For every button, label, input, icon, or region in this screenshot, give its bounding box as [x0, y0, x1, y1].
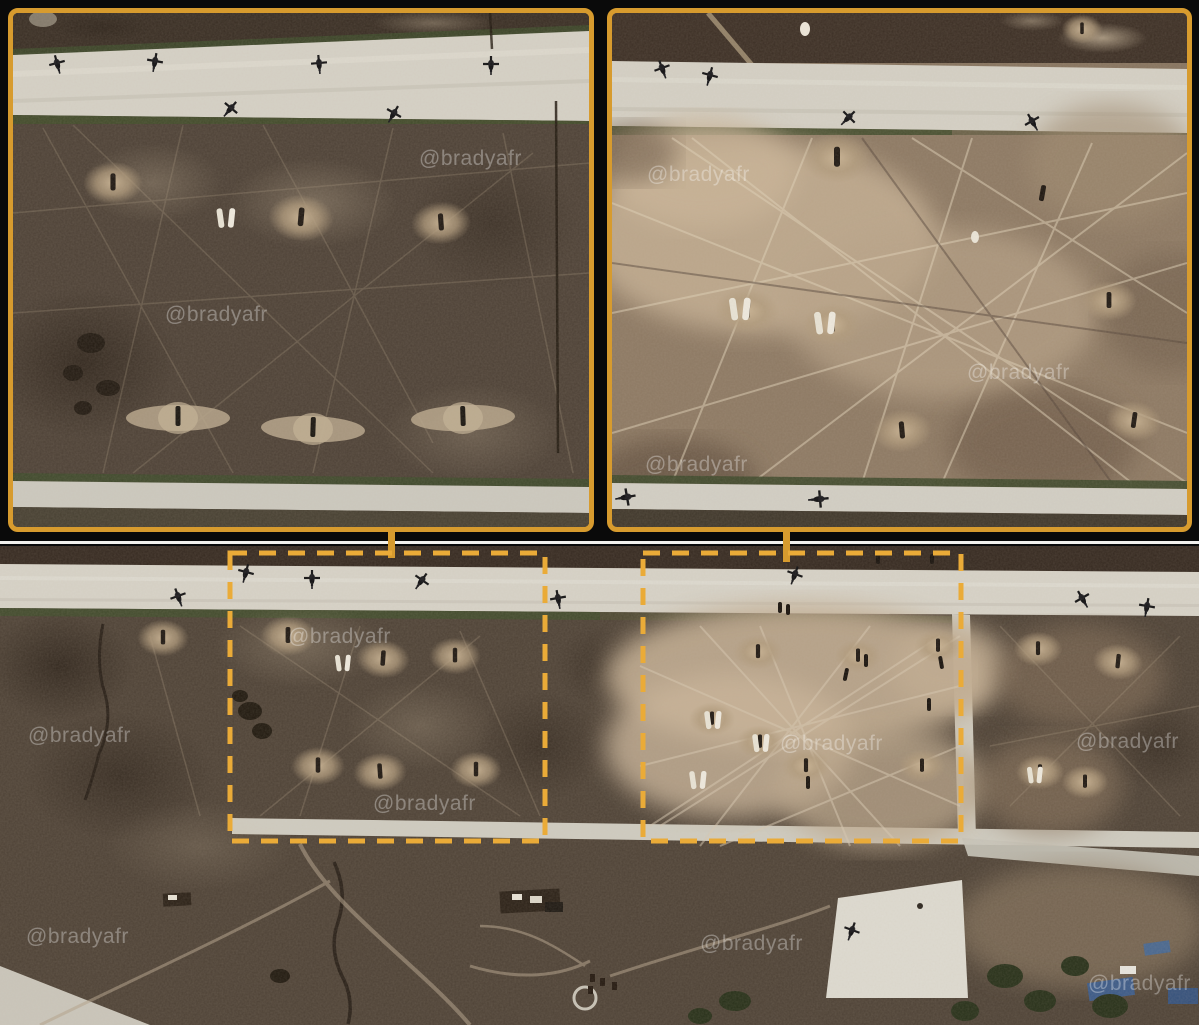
- watermark: @bradyafr: [645, 453, 748, 476]
- watermark: @bradyafr: [647, 163, 750, 186]
- watermark: @bradyafr: [373, 792, 476, 815]
- satellite-overview: @bradyafr @bradyafr @bradyafr @bradyafr …: [0, 546, 1199, 1025]
- watermark: @bradyafr: [288, 625, 391, 648]
- watermark: @bradyafr: [1088, 972, 1191, 995]
- satellite-inset-right: @bradyafr @bradyafr @bradyafr: [607, 8, 1192, 532]
- watermark: @bradyafr: [165, 303, 268, 326]
- satellite-scene-left: @bradyafr @bradyafr: [13, 13, 589, 527]
- watermark: @bradyafr: [26, 925, 129, 948]
- satellite-scene-overview: @bradyafr @bradyafr @bradyafr @bradyafr …: [0, 546, 1199, 1025]
- divider-line: [0, 541, 1199, 544]
- watermark: @bradyafr: [967, 361, 1070, 384]
- watermark: @bradyafr: [28, 724, 131, 747]
- satellite-inset-left: @bradyafr @bradyafr: [8, 8, 594, 532]
- annotated-satellite-image: @bradyafr @bradyafr: [0, 0, 1199, 1025]
- satellite-scene-right: @bradyafr @bradyafr @bradyafr: [612, 13, 1187, 527]
- watermark: @bradyafr: [419, 147, 522, 170]
- watermark: @bradyafr: [700, 932, 803, 955]
- watermark: @bradyafr: [1076, 730, 1179, 753]
- watermark: @bradyafr: [780, 732, 883, 755]
